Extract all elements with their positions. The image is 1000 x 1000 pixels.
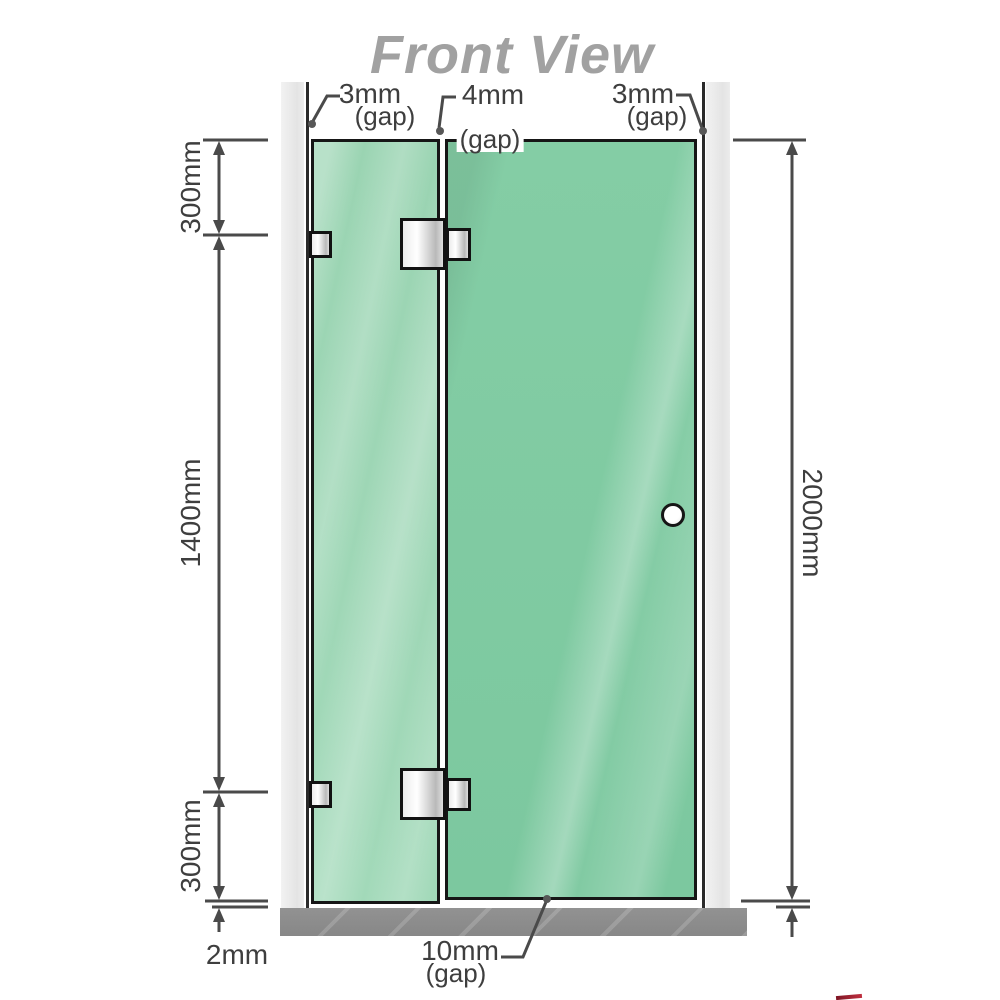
arrowhead [213,908,225,922]
arrowhead [213,793,225,807]
dimension-label-2000mm: 2000mm [798,469,826,578]
leader-line-10mm [501,902,546,957]
label-gap-bottom-door-note: (gap) [426,960,487,986]
leader-line-3mm-left [313,96,340,121]
arrowhead [213,886,225,900]
arrowhead [786,886,798,900]
dimension-label-1400mm: 1400mm [177,459,205,568]
label-gap-top-left-note: (gap) [355,103,416,129]
label-gap-top-middle: 4mm [462,81,524,109]
leader-dot [436,127,444,135]
dimension-label-300mm-bottom: 300mm [177,799,205,892]
leader-dot [308,120,316,128]
arrowhead [786,141,798,155]
dimension-label-300mm-top: 300mm [177,140,205,233]
label-2mm-floor-gap: 2mm [206,941,268,969]
shower-screen-front-view-diagram: Front View [0,0,1000,1000]
leader-dot [699,127,707,135]
arrowhead [213,220,225,234]
arrowhead [213,236,225,250]
label-gap-top-right-note: (gap) [627,103,688,129]
arrowhead [213,777,225,791]
arrowhead [213,141,225,155]
leader-dot [543,895,551,903]
arrowhead [786,908,798,922]
leader-line-4mm [439,97,456,128]
label-gap-top-middle-note: (gap) [457,126,524,152]
